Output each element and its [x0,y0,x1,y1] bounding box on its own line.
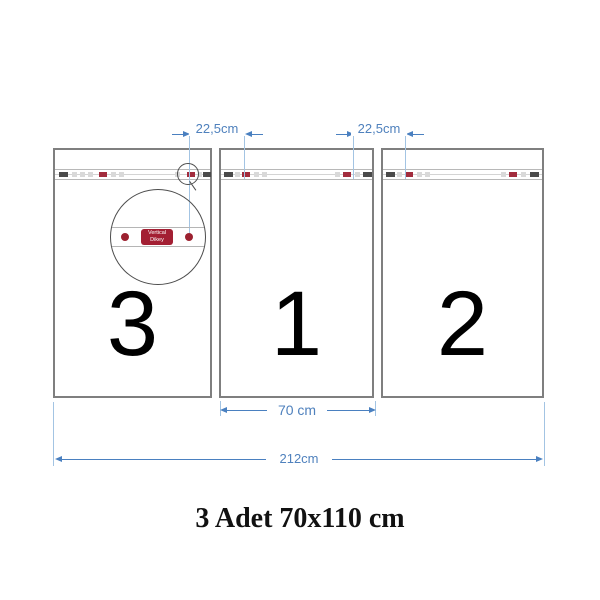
extension-line [544,402,545,466]
stitch-mark [417,172,422,177]
extension-line [405,130,406,179]
stitch-mark [355,172,360,177]
product-caption: 3 Adet 70x110 cm [0,503,600,535]
panel-number: 2 [383,278,542,370]
arrowhead-left-icon [406,131,413,137]
dimension-arrow-line [172,134,183,135]
stitch-mark [262,172,267,177]
stitch-mark [80,172,85,177]
dimension-label-spacing-left: 22,5cm [189,121,245,136]
stitch-mark [88,172,93,177]
stitch-mark [521,172,526,177]
eyelet-mark [509,172,517,177]
magnifier-source-circle [177,163,199,185]
panel-number: 1 [221,278,372,370]
extension-line [353,130,354,179]
hanging-strip [383,169,542,180]
dimension-arrow-line [413,134,424,135]
dimension-label-panel-width: 70 cm [267,402,327,418]
arrowhead-right-icon [369,407,376,413]
orientation-badge: Vertical Dikey [141,229,173,245]
dimension-label-spacing-right: 22,5cm [351,121,407,136]
strip-edge-line [111,246,205,247]
badge-text-line1: Vertical [141,230,173,237]
panel-number: 3 [55,278,210,370]
eyelet-icon [121,233,129,241]
panel-1: 1 [219,148,374,398]
velcro-mark [59,172,68,177]
stitch-mark [111,172,116,177]
panel-2: 2 [381,148,544,398]
arrowhead-left-icon [220,407,227,413]
eyelet-mark [343,172,351,177]
stitch-mark [335,172,340,177]
arrowhead-left-icon [55,456,62,462]
velcro-mark [203,172,211,177]
diagram-canvas: 3 1 2 [0,0,600,600]
arrowhead-left-icon [245,131,252,137]
dimension-arrow-line [336,134,347,135]
eyelet-mark [99,172,107,177]
stitch-mark [397,172,402,177]
dimension-label-total-width: 212cm [266,451,332,466]
eyelet-icon [185,233,193,241]
strip-edge-line [111,227,205,228]
stitch-mark [425,172,430,177]
stitch-mark [72,172,77,177]
stitch-mark [501,172,506,177]
velcro-mark [363,172,372,177]
dimension-arrow-line [252,134,263,135]
stitch-mark [235,172,240,177]
eyelet-mark [405,172,413,177]
stitch-mark [119,172,124,177]
extension-line [244,130,245,179]
velcro-mark [530,172,539,177]
extension-line [189,190,190,238]
extension-line [53,402,54,466]
badge-text-line2: Dikey [141,237,173,244]
arrowhead-right-icon [536,456,543,462]
magnifier-detail-circle: Vertical Dikey [110,189,206,285]
stitch-mark [254,172,259,177]
velcro-mark [386,172,395,177]
velcro-mark [224,172,233,177]
